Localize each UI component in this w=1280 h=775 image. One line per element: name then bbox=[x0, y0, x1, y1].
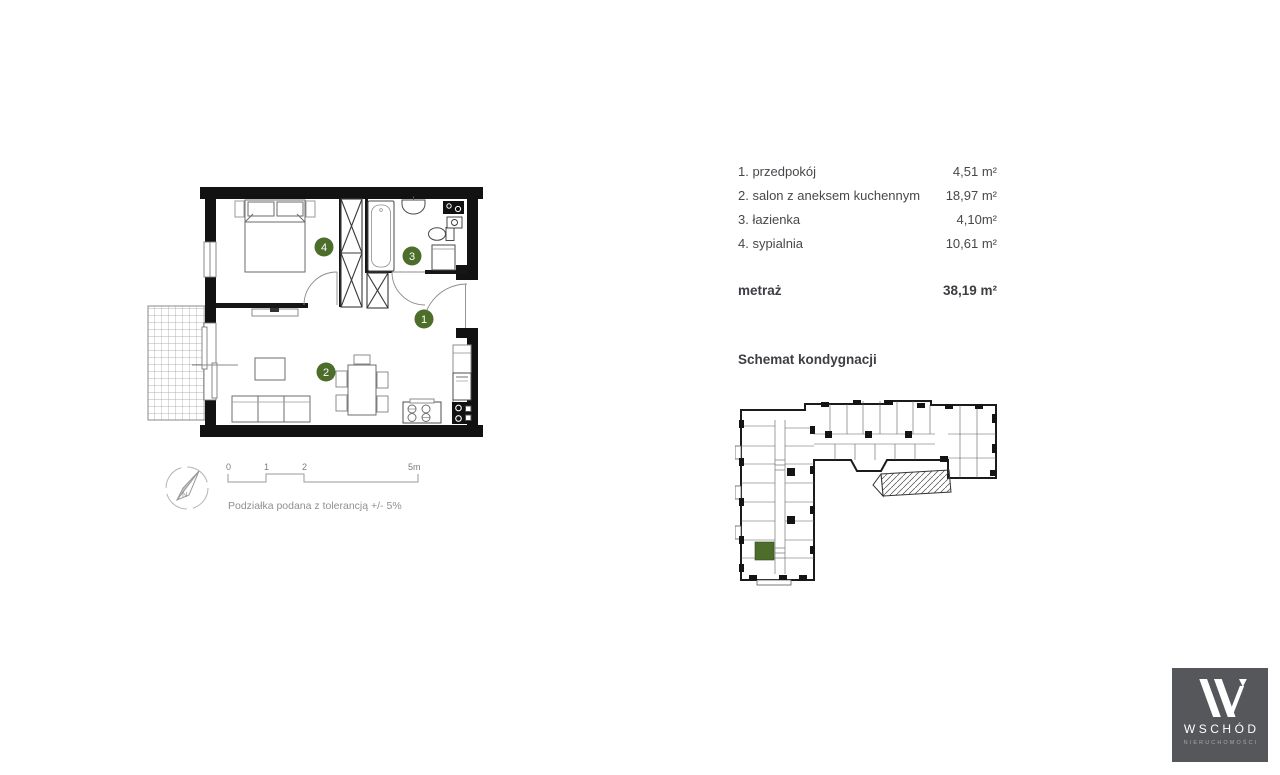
fridge bbox=[453, 373, 471, 400]
kitchen-sink bbox=[452, 402, 473, 424]
room-name: 1. przedpokój bbox=[738, 160, 816, 184]
total-label: metraż bbox=[738, 279, 782, 303]
logo-brand-text: WSCHÓD bbox=[1180, 722, 1259, 736]
legend-row-4: 4. sypialnia 10,61 m² bbox=[738, 232, 997, 256]
toilet bbox=[429, 228, 455, 241]
scale-tick-5m: 5m bbox=[408, 462, 421, 472]
scale-tick-2: 2 bbox=[302, 462, 307, 472]
scale-tick-1: 1 bbox=[264, 462, 269, 472]
scale-tick-0: 0 bbox=[226, 462, 231, 472]
bathroom-door bbox=[392, 272, 425, 305]
chair bbox=[336, 371, 347, 387]
room-marker-2: 2 bbox=[317, 363, 336, 382]
dining-set bbox=[336, 355, 388, 415]
legend-row-3: 3. łazienka 4,10m² bbox=[738, 208, 997, 232]
floor-plan: 4 3 1 2 0 1 2 5m N Podziałka podana z to… bbox=[140, 175, 490, 525]
room-marker-label: 4 bbox=[321, 242, 327, 254]
room-marker-4: 4 bbox=[315, 238, 334, 257]
meter-boxes bbox=[443, 201, 464, 228]
room-name: 3. łazienka bbox=[738, 208, 800, 232]
compass-north-label: N bbox=[182, 490, 187, 499]
room-area: 4,10m² bbox=[957, 208, 997, 232]
room-area: 4,51 m² bbox=[953, 160, 997, 184]
logo-w-icon bbox=[1191, 679, 1249, 717]
room-legend: 1. przedpokój 4,51 m² 2. salon z aneksem… bbox=[738, 160, 997, 303]
kitchen-cabinet bbox=[453, 345, 471, 373]
chair bbox=[336, 395, 347, 411]
logo-subtitle-text: NIERUCHOMOŚCI bbox=[1182, 740, 1259, 746]
schematic-title: Schemat kondygnacji bbox=[738, 352, 877, 367]
ramp-tip bbox=[873, 474, 883, 496]
room-marker-label: 3 bbox=[409, 251, 415, 263]
stove bbox=[403, 399, 441, 423]
tolerance-note: Podziałka podana z tolerancją +/- 5% bbox=[228, 500, 402, 512]
chair bbox=[377, 372, 388, 388]
room-marker-3: 3 bbox=[403, 247, 422, 266]
scale-bar: 0 1 2 5m bbox=[226, 462, 421, 482]
room-name: 4. sypialnia bbox=[738, 232, 803, 256]
bathroom-sink bbox=[402, 200, 425, 214]
room-marker-1: 1 bbox=[415, 310, 434, 329]
coffee-table bbox=[255, 358, 285, 380]
living-room-furniture bbox=[232, 308, 388, 422]
legend-row-1: 1. przedpokój 4,51 m² bbox=[738, 160, 997, 184]
room-marker-label: 2 bbox=[323, 367, 329, 379]
room-area: 18,97 m² bbox=[946, 184, 997, 208]
balcony-terrace bbox=[148, 306, 205, 420]
chair bbox=[377, 396, 388, 412]
legend-row-2: 2. salon z aneksem kuchennym 18,97 m² bbox=[738, 184, 997, 208]
bed bbox=[235, 200, 315, 272]
tv-console bbox=[252, 308, 298, 316]
company-logo: WSCHÓD NIERUCHOMOŚCI bbox=[1172, 668, 1268, 762]
nightstand bbox=[235, 201, 244, 217]
bedroom-door bbox=[304, 272, 337, 305]
compass-icon: N bbox=[166, 467, 208, 509]
sofa bbox=[232, 396, 310, 422]
highlighted-unit bbox=[755, 542, 774, 560]
room-name: 2. salon z aneksem kuchennym bbox=[738, 184, 920, 208]
room-marker-label: 1 bbox=[421, 314, 427, 326]
dining-table bbox=[348, 365, 376, 415]
chair bbox=[354, 355, 370, 364]
building-floor-schematic bbox=[735, 398, 1000, 588]
total-area: 38,19 m² bbox=[943, 279, 997, 303]
total-area-row: metraż 38,19 m² bbox=[738, 279, 997, 303]
kitchen bbox=[403, 345, 473, 424]
nightstand bbox=[306, 201, 315, 217]
room-area: 10,61 m² bbox=[946, 232, 997, 256]
ramp bbox=[881, 470, 951, 496]
